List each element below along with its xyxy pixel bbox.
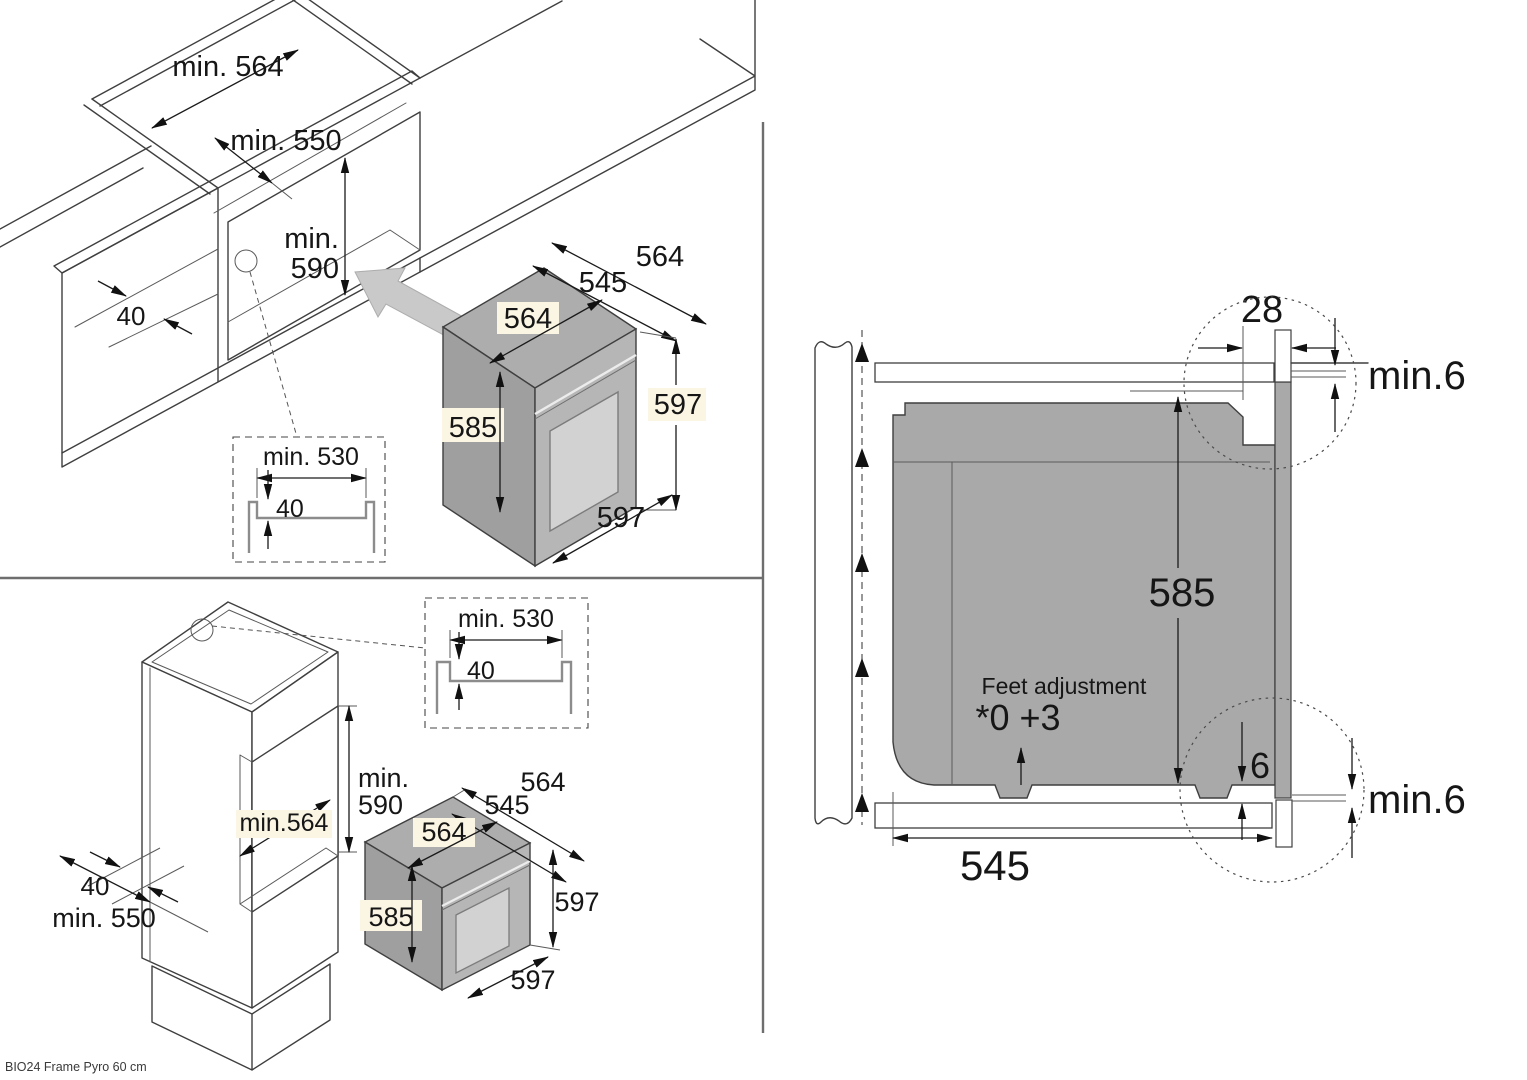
dim-label-oven-height-body: 585 (449, 412, 497, 444)
dim-label-niche-height-min: min. (358, 763, 409, 793)
recess-profile (437, 662, 571, 714)
dim-label-niche-depth: min. 550 (230, 125, 341, 157)
dim-label-oven-height-front: 597 (654, 389, 702, 421)
bottom-shelf (875, 803, 1272, 828)
dim-label-niche-depth: min. 550 (52, 903, 156, 933)
dim-label-front-offset: 28 (1241, 289, 1283, 331)
dim-label-bottom-gap: 6 (1250, 745, 1270, 786)
detail-label-recess-depth: 40 (467, 657, 495, 685)
dim-label-oven-depth-body: 545 (484, 790, 529, 820)
installation-diagram: min. 564 min. 550 min. 590 40 min. 530 4… (0, 0, 1527, 1080)
dim-label-niche-height-min: min. (284, 223, 339, 255)
recess-detail-box-column: min. 530 40 (425, 598, 588, 728)
bottom-clearance-dimension: min.6 (1352, 738, 1466, 858)
airflow-arrow (855, 658, 869, 677)
detail-label-recess-width: min. 530 (263, 443, 359, 471)
airflow-arrow (855, 553, 869, 572)
detail-label-recess-depth: 40 (276, 495, 304, 523)
ext-oven-597 (530, 945, 560, 950)
back-rail-left (0, 146, 151, 247)
dim-label-niche-height-val: 590 (358, 790, 403, 820)
dim-label-oven-width-top: 564 (504, 303, 552, 335)
dim-label-rail-width: 40 (117, 301, 146, 331)
base-cabinet-run-view: min. 564 min. 550 min. 590 40 min. 530 4… (0, 0, 755, 566)
detail-label-recess-width: min. 530 (458, 605, 554, 633)
dim-label-niche-height-val: 590 (291, 253, 339, 285)
dim-label-niche-width-inner: min.564 (240, 809, 329, 837)
dim-label-body-depth: 545 (960, 842, 1030, 889)
column-cabinet-view: min. 530 40 min. 590 min.564 40 m (52, 598, 599, 1070)
dim-arrow-rail-a (90, 852, 120, 867)
installation-diagram-page: min. 564 min. 550 min. 590 40 min. 530 4… (0, 0, 1527, 1080)
feet-adjustment-title: Feet adjustment (982, 673, 1148, 699)
dim-label-rail-width: 40 (81, 871, 110, 901)
airflow-arrow (855, 448, 869, 467)
dim-label-bottom-clearance: min.6 (1368, 778, 1466, 822)
oven-front-frame (1275, 382, 1291, 798)
airflow-arrow (855, 793, 869, 812)
model-label: BIO24 Frame Pyro 60 cm (5, 1060, 147, 1074)
frame-top-tab (1275, 330, 1291, 382)
dim-label-oven-width-front: 597 (510, 965, 555, 995)
dim-label-oven-depth-body: 545 (579, 267, 627, 299)
dim-label-body-height: 585 (1149, 571, 1216, 615)
dim-label-oven-height-front: 597 (554, 887, 599, 917)
dim-label-oven-width-top: 564 (421, 817, 466, 847)
oven-isometric-base: 564 545 564 585 597 597 (442, 241, 706, 566)
bottom-gap-lines (1292, 795, 1346, 801)
column-side-face (142, 662, 252, 1008)
top-clearance-dimension: min.6 (1335, 318, 1466, 432)
worktop (875, 363, 1274, 382)
wall-panel (815, 342, 852, 824)
right-cabinet (420, 0, 755, 272)
top-gap-lines (1291, 371, 1346, 377)
recess-detail-box-base: min. 530 40 (233, 437, 385, 562)
frame-bottom-tab (1276, 800, 1292, 847)
dim-label-oven-width-front: 597 (597, 502, 645, 534)
dim-label-oven-height-body: 585 (368, 902, 413, 932)
ext-oven-597-top (640, 332, 676, 338)
bay-divider-right (286, 0, 420, 84)
front-offset-dimension: 28 (1198, 289, 1336, 400)
dim-label-niche-width: min. 564 (172, 51, 283, 83)
ext-oven-564 (453, 789, 466, 797)
side-section-view: 28 min.6 585 Feet adjustment *0 +3 6 (815, 289, 1466, 889)
dim-label-oven-depth-total: 564 (636, 241, 684, 273)
airflow-arrow (855, 343, 869, 362)
base-cabinet-run (0, 0, 755, 467)
feet-adjustment-range: *0 +3 (975, 697, 1060, 738)
dim-label-top-clearance: min.6 (1368, 354, 1466, 398)
